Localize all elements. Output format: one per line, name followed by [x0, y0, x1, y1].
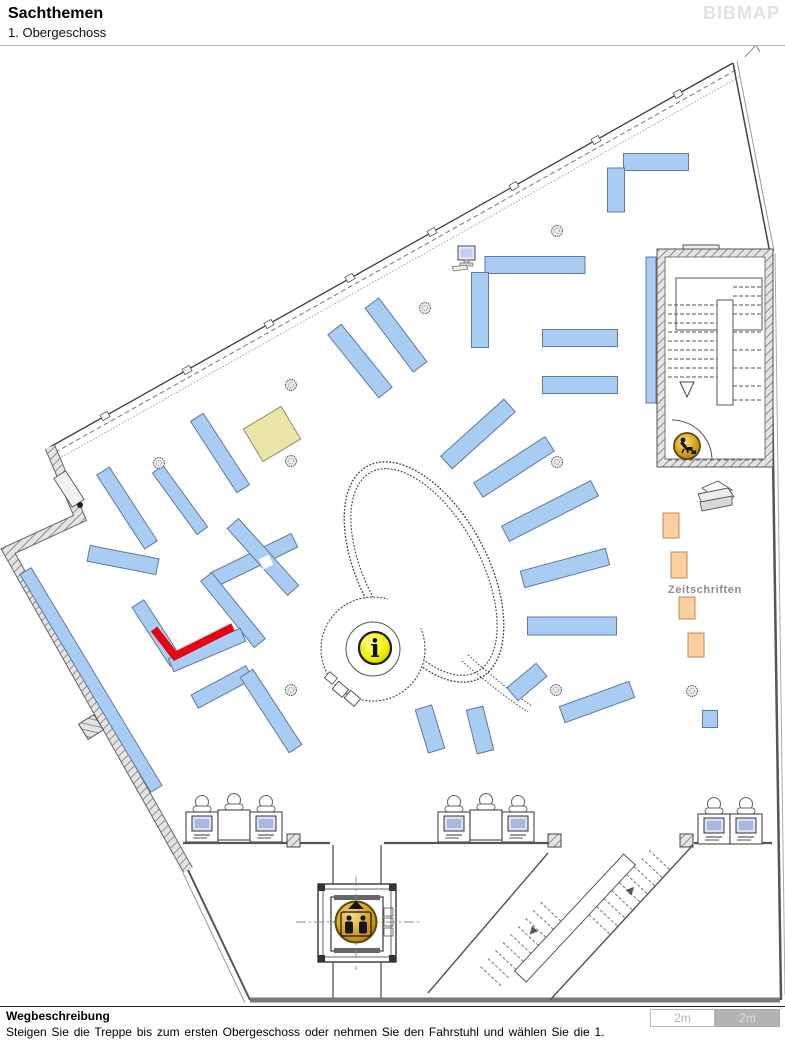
bookshelf	[507, 663, 547, 700]
bookshelf	[474, 437, 555, 498]
bookshelf	[191, 413, 250, 492]
elevator-icon	[336, 901, 377, 943]
floor-subtitle: 1. Obergeschoss	[8, 25, 106, 40]
page-title: Sachthemen	[8, 5, 103, 23]
bookshelf	[528, 617, 617, 635]
special-shelf	[243, 406, 300, 461]
bookshelf	[543, 330, 618, 347]
bookshelf	[227, 519, 298, 596]
computer-workstation-icon	[698, 798, 730, 845]
bookshelf	[502, 481, 599, 542]
bookshelf	[191, 666, 253, 708]
bookshelf	[624, 154, 689, 171]
building-column	[552, 457, 563, 468]
reading-desk-icon	[218, 794, 250, 841]
bookshelf	[365, 298, 427, 372]
bookshelf	[472, 273, 489, 348]
computer-workstation-icon	[730, 798, 762, 845]
bookshelf	[543, 377, 618, 394]
facade-wall	[50, 63, 733, 447]
person-on-stairs-icon	[674, 433, 700, 459]
upper-staircase	[657, 245, 773, 467]
bookshelf	[97, 467, 158, 549]
bookshelf	[466, 706, 493, 754]
building-column	[420, 303, 431, 314]
bookshelf	[415, 705, 444, 753]
svg-text:i: i	[370, 634, 380, 663]
workstations-layer	[186, 794, 762, 845]
bookshelf	[520, 548, 609, 587]
computer-workstation-icon	[186, 796, 218, 843]
bookshelf	[559, 681, 634, 722]
computer-icon	[452, 246, 475, 271]
building-column	[286, 456, 297, 467]
bookshelf	[87, 545, 159, 574]
bookshelf	[240, 669, 302, 753]
magazine-rack	[688, 633, 704, 657]
bookshelf	[703, 711, 718, 728]
bookshelf	[608, 168, 625, 212]
bibmap-logo: BIBMAP	[703, 3, 780, 24]
footer: Wegbeschreibung Steigen Sie die Treppe b…	[0, 1006, 785, 1043]
floor-plan-svg: i	[0, 46, 785, 1006]
lower-staircase	[428, 820, 693, 1006]
left-wall	[8, 447, 188, 870]
magazine-rack	[663, 513, 679, 538]
building-column	[154, 458, 165, 469]
directions-text: Steigen Sie die Treppe bis zum ersten Ob…	[6, 1025, 605, 1039]
bookshelf	[328, 324, 392, 398]
header: Sachthemen 1. Obergeschoss BIBMAP	[0, 0, 785, 46]
computer-workstation-icon	[438, 796, 470, 843]
info-icon: i	[359, 632, 391, 664]
bookshelf	[152, 465, 207, 534]
building-column	[551, 685, 562, 696]
magazine-rack	[679, 597, 695, 619]
bookshelf	[646, 257, 656, 403]
zeitschriften-label: Zeitschriften	[668, 584, 742, 596]
special-shelves-layer	[243, 406, 300, 461]
reading-desk-icon	[470, 794, 502, 841]
bookshelf	[485, 257, 585, 274]
bookshelf	[441, 399, 516, 469]
building-column	[286, 380, 297, 391]
floor-plan-map: i	[0, 46, 785, 1006]
magazine-rack	[671, 552, 687, 578]
building-column	[286, 685, 297, 696]
building-column	[552, 226, 563, 237]
scale-bar-dark: 2m	[715, 1009, 780, 1027]
copier-icon	[698, 481, 734, 511]
building-column	[687, 686, 698, 697]
computer-workstation-icon	[250, 796, 282, 843]
computer-workstation-icon	[502, 796, 534, 843]
directions-heading: Wegbeschreibung	[6, 1009, 110, 1023]
scale-bar-light: 2m	[650, 1009, 715, 1027]
